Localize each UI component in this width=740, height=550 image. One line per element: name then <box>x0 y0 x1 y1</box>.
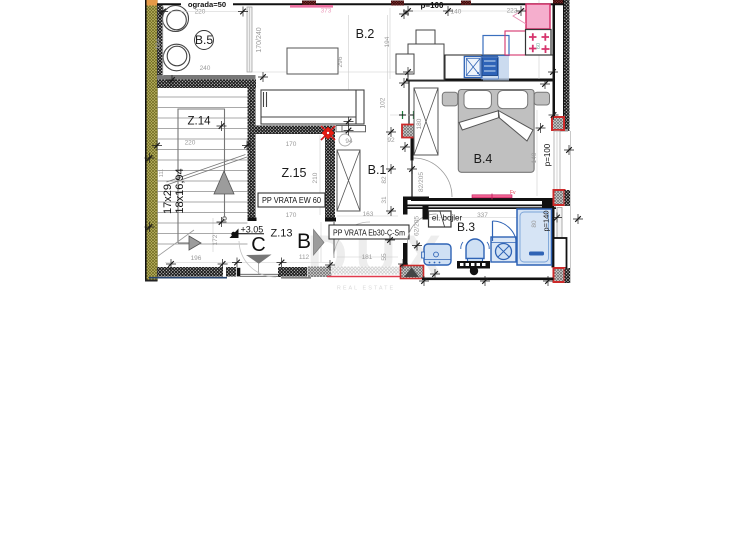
svg-text:55: 55 <box>381 253 388 261</box>
svg-text:170: 170 <box>286 212 297 219</box>
svg-text:163: 163 <box>363 211 374 218</box>
svg-text:140: 140 <box>451 9 462 16</box>
svg-text:220: 220 <box>185 140 196 147</box>
svg-text:210: 210 <box>312 172 319 183</box>
svg-text:62/205: 62/205 <box>414 216 421 236</box>
svg-text:Z.15: Z.15 <box>281 166 306 180</box>
svg-text:184: 184 <box>155 38 162 49</box>
svg-text:220: 220 <box>195 9 206 16</box>
svg-text:Z.14: Z.14 <box>187 116 211 128</box>
svg-text:PP VRATA EW 60: PP VRATA EW 60 <box>262 196 321 205</box>
svg-text:B.4: B.4 <box>474 152 493 166</box>
svg-text:240: 240 <box>200 65 211 72</box>
svg-text:31: 31 <box>381 196 388 204</box>
svg-text:B.5: B.5 <box>195 33 213 47</box>
svg-text:17x29: 17x29 <box>162 184 174 214</box>
svg-text:373: 373 <box>321 8 332 15</box>
svg-text:170: 170 <box>286 141 297 148</box>
svg-text:102: 102 <box>380 97 387 108</box>
svg-text:196: 196 <box>191 255 202 262</box>
svg-text:194: 194 <box>384 36 391 47</box>
svg-text:82/205: 82/205 <box>418 172 425 192</box>
svg-text:80: 80 <box>531 220 538 228</box>
svg-text:B.2: B.2 <box>356 27 375 41</box>
svg-text:140: 140 <box>531 152 538 163</box>
svg-text:92: 92 <box>387 137 395 144</box>
svg-text:180: 180 <box>416 118 423 129</box>
svg-text:p=140: p=140 <box>542 210 551 231</box>
svg-text:p=100: p=100 <box>543 143 552 166</box>
svg-text:B.1: B.1 <box>368 163 387 177</box>
svg-text:112: 112 <box>299 254 310 261</box>
svg-text:60: 60 <box>536 43 542 49</box>
svg-text:B: B <box>297 230 311 253</box>
svg-text:PP VRATA Eb30-C-Sm: PP VRATA Eb30-C-Sm <box>333 228 405 237</box>
svg-text:170/240: 170/240 <box>256 27 263 52</box>
svg-text:Z.13: Z.13 <box>270 228 292 240</box>
svg-text:p=100: p=100 <box>421 1 444 10</box>
svg-text:REAL ESTATE: REAL ESTATE <box>337 286 395 292</box>
svg-text:+3.05: +3.05 <box>241 225 264 235</box>
svg-text:172: 172 <box>212 234 219 245</box>
svg-text:C: C <box>251 234 265 256</box>
svg-text:18x16,94: 18x16,94 <box>174 168 186 213</box>
svg-text:B.3: B.3 <box>457 220 475 234</box>
svg-text:82: 82 <box>381 176 388 184</box>
svg-text:337: 337 <box>477 212 488 219</box>
svg-text:Fv: Fv <box>510 190 516 196</box>
svg-text:111: 111 <box>159 169 165 177</box>
svg-text:181: 181 <box>362 254 373 261</box>
